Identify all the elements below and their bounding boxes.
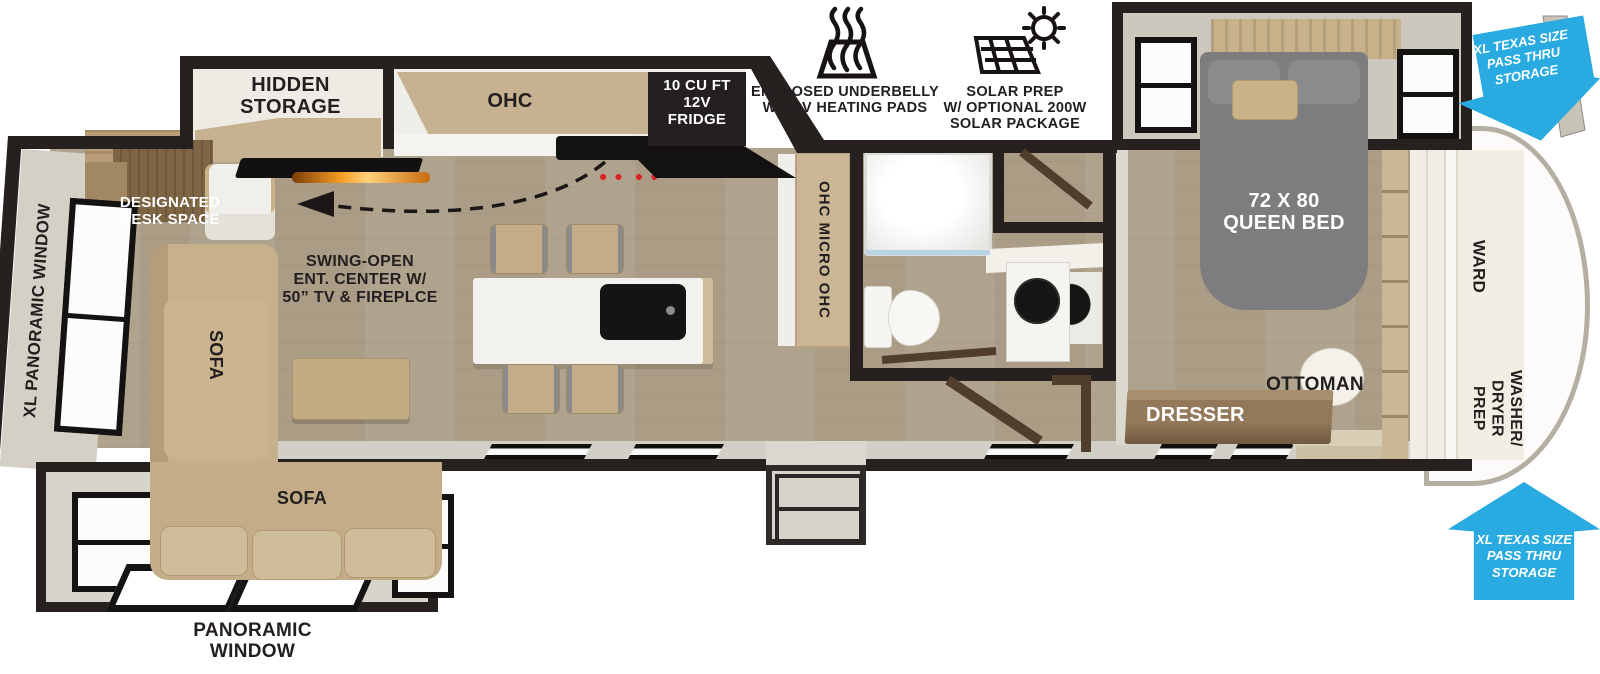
sink-faucet	[666, 306, 675, 315]
underbelly-label: ENCLOSED UNDERBELLYW/ 12V HEATING PADS	[750, 84, 940, 116]
micro-label: OHC MICRO OHC	[800, 158, 846, 342]
bottom-window	[484, 444, 592, 459]
rear-top-wall	[8, 136, 190, 149]
ward-label: WARD	[1462, 240, 1496, 340]
sofa-main-label: SOFA	[242, 488, 362, 508]
island-stool	[502, 364, 560, 414]
wardrobe-doors	[1410, 150, 1458, 460]
ohc-label: OHC	[470, 90, 550, 112]
sofa-cushion	[252, 530, 342, 580]
bath-right-wall	[1103, 140, 1116, 378]
washer-door	[1014, 278, 1060, 324]
ent-center-label: SWING-OPENENT. CENTER W/50” TV & FIREPLC…	[255, 253, 465, 307]
heating-pads-icon	[806, 6, 886, 80]
shower-glass	[866, 250, 990, 255]
desk-label: DESIGNATEDDESK SPACE	[95, 195, 245, 229]
sofa-cushion	[160, 526, 248, 576]
bedroom-step	[1296, 446, 1392, 459]
pass-thru-arrow-bottom: XL TEXAS SIZEPASS THRUSTORAGE	[1448, 482, 1600, 600]
bottom-window	[1154, 444, 1218, 459]
entry-steps	[766, 465, 866, 545]
side-table	[292, 358, 410, 420]
bottom-window	[628, 444, 724, 459]
sofa-cushion	[344, 528, 436, 578]
bed-slide-left-window	[1135, 37, 1197, 133]
ottoman-label: OTTOMAN	[1248, 374, 1382, 395]
washer-dryer-prep-label: WASHER/DRYERPREP	[1466, 348, 1524, 468]
fridge-label: 10 CU FT12VFRIDGE	[648, 78, 746, 128]
micro-counter-edge	[778, 154, 796, 346]
bath-bottom-wall	[850, 368, 1116, 381]
bottom-window	[1230, 444, 1294, 459]
bath-left-wall	[850, 140, 863, 380]
sofa-chaise-label: SOFA	[198, 330, 234, 470]
kitchen-slide-top-wall	[180, 56, 755, 69]
closet-divider-wall-v	[993, 140, 1004, 233]
hidden-storage-label: HIDDENSTORAGE	[208, 74, 373, 119]
dresser-label: DRESSER	[1146, 404, 1276, 426]
bottom-window	[984, 444, 1074, 459]
washer-mirror	[1070, 272, 1102, 344]
bed-pillow	[1288, 60, 1360, 104]
bed-slide-right-window	[1397, 49, 1459, 139]
rv-floorplan: XL PANORAMIC WINDOW HIDDENSTORAGE OHC 10…	[0, 0, 1600, 674]
solar-prep-icon	[962, 6, 1066, 86]
island-stool	[566, 224, 624, 274]
stove-knobs	[598, 172, 662, 182]
fireplace-glow	[292, 172, 430, 183]
solar-prep-label: SOLAR PREPW/ OPTIONAL 200WSOLAR PACKAGE	[930, 84, 1100, 133]
wardrobe-shelves	[1382, 150, 1408, 460]
closet-divider-wall-h	[998, 222, 1116, 233]
island-stool	[566, 364, 624, 414]
island-stool	[490, 224, 548, 274]
entry-step	[775, 507, 863, 543]
kitchen-slide-left-wall	[180, 56, 193, 149]
panoramic-window-label: PANORAMICWINDOW	[145, 620, 360, 663]
queen-bed-label: 72 X 80QUEEN BED	[1200, 190, 1368, 235]
shower	[864, 152, 992, 256]
bed-cushion	[1232, 80, 1298, 120]
kitchen-slide-divider-wall	[383, 58, 394, 149]
